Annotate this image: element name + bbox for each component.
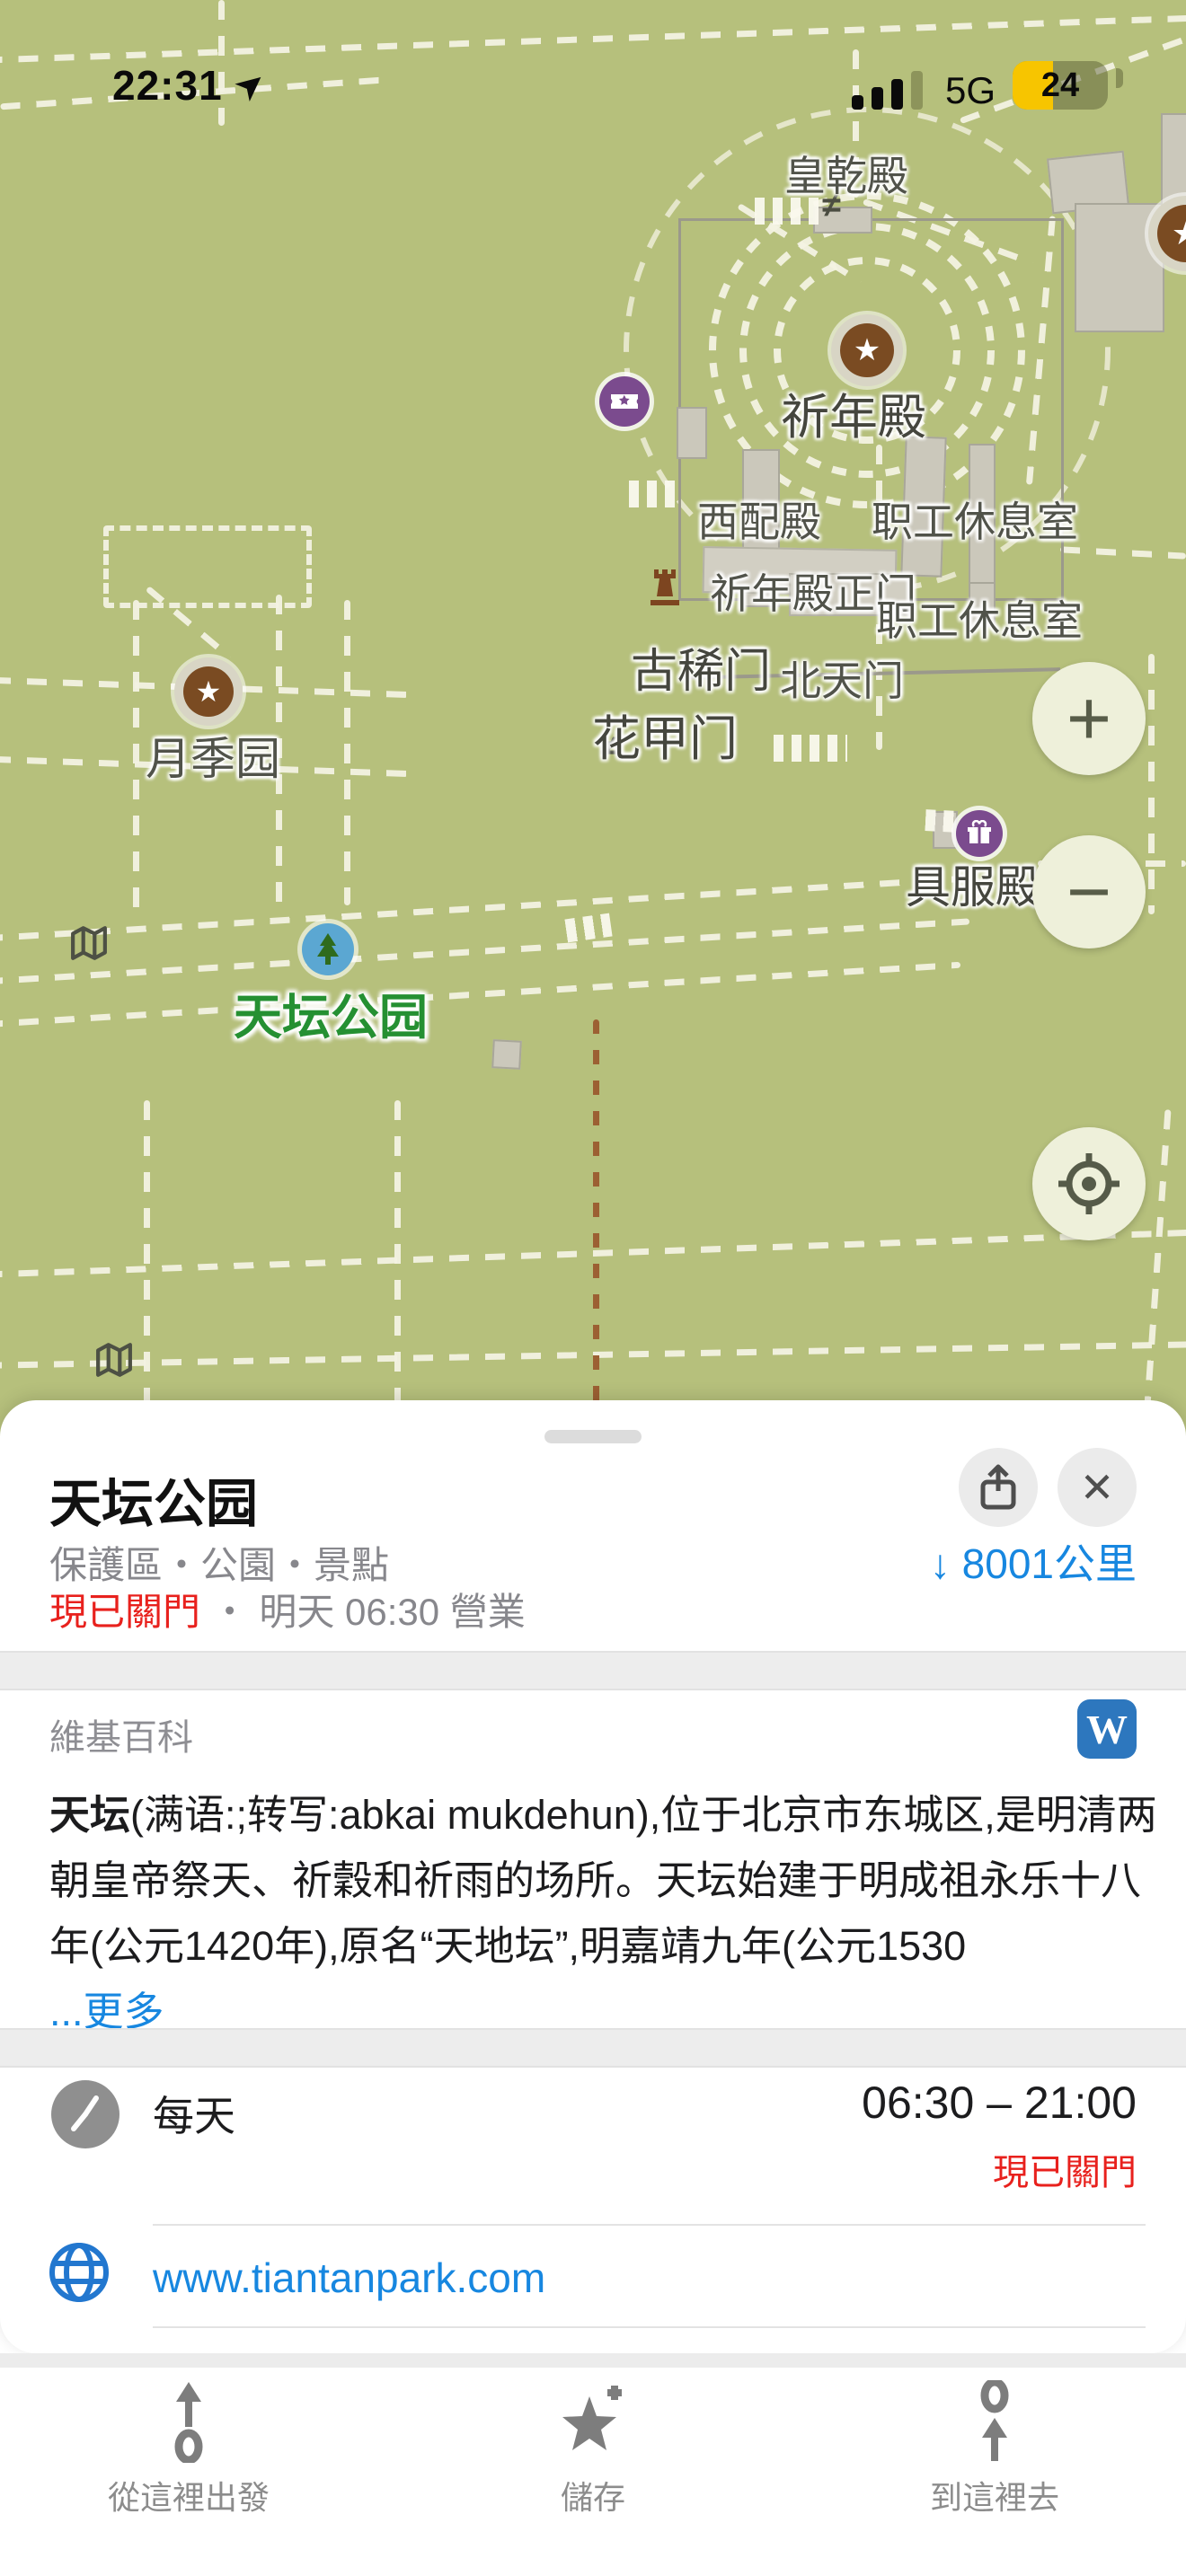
route-from-icon	[162, 2380, 216, 2463]
map-label-huajiamen: 花甲门	[592, 699, 738, 770]
status-bar-right: 5G 24	[852, 61, 1123, 110]
map-canvas[interactable]: ★ ★ ★ ≠ ≠ 皇乾殿 祈年殿	[0, 0, 1186, 1455]
location-arrow-icon: ➤	[226, 60, 275, 111]
building	[1075, 203, 1164, 332]
clock-icon	[49, 2078, 121, 2150]
signal-bar	[891, 79, 903, 110]
map-label-yuejiyuan: 月季园	[146, 723, 280, 788]
globe-icon	[47, 2240, 111, 2305]
route-to-icon	[968, 2380, 1022, 2463]
poi-gift-shop-marker[interactable]	[956, 810, 1003, 857]
toolbar-label: 到這裡去	[930, 2472, 1059, 2519]
toolbar-label: 儲存	[561, 2472, 625, 2519]
building	[677, 407, 707, 459]
map-label-xipeidian: 西配殿	[697, 490, 821, 549]
map-label-beitianmen: 北天门	[780, 648, 904, 708]
signal-bar	[872, 87, 883, 110]
place-title: 天坛公园	[49, 1461, 258, 1537]
battery-percent: 24	[1013, 61, 1108, 110]
gift-icon	[966, 820, 993, 847]
locate-icon	[1055, 1150, 1123, 1218]
map-label-qiniandian: 祈年殿	[781, 377, 926, 448]
locate-button[interactable]	[1032, 1127, 1146, 1240]
share-icon	[978, 1464, 1019, 1511]
distance-badge: ↓ 8001公里	[930, 1531, 1137, 1591]
zoom-out-button[interactable]: −	[1032, 835, 1146, 948]
network-type: 5G	[945, 72, 996, 110]
map-label-tiantan-park: 天坛公园	[234, 977, 428, 1048]
star-plus-icon	[557, 2380, 629, 2463]
path-steps	[925, 809, 958, 833]
section-divider	[0, 2028, 1186, 2068]
signal-bar	[852, 95, 863, 110]
poi-qiniandian-marker[interactable]: ★	[840, 323, 894, 377]
wikipedia-excerpt: 天坛(满语:;转写:abkai mukdehun),位于北京市东城区,是明清两朝…	[49, 1782, 1159, 2044]
battery-icon: 24	[1013, 61, 1108, 110]
close-button[interactable]: ✕	[1058, 1448, 1137, 1527]
map-label-huangqiandian: 皇乾殿	[784, 144, 908, 203]
distance-value: 8001公里	[962, 1540, 1137, 1587]
card-gap	[0, 2353, 1186, 2368]
website-link[interactable]: www.tiantanpark.com	[153, 2254, 545, 2302]
wiki-body: (满语:;转写:abkai mukdehun),位于北京市东城区,是明清两朝皇帝…	[49, 1792, 1157, 1969]
clock-time: 22:31	[112, 61, 223, 110]
map-label-xiuxishi-2: 职工休息室	[876, 588, 1083, 648]
open-status-line: 現已關門 ・ 明天 06:30 營業	[49, 1582, 526, 1636]
building	[1161, 113, 1186, 208]
tree-icon	[313, 931, 343, 967]
map-board-icon	[70, 925, 108, 961]
section-divider	[0, 1651, 1186, 1690]
path-steps	[629, 481, 683, 507]
save-button[interactable]: 儲存	[458, 2380, 728, 2519]
wiki-term: 天坛	[49, 1792, 130, 1838]
wikipedia-w: W	[1086, 1706, 1128, 1753]
star-icon: ★	[196, 675, 222, 709]
wikipedia-heading: 維基百科	[49, 1708, 193, 1760]
action-toolbar: 從這裡出發 儲存 到這裡去	[0, 2368, 1186, 2576]
plus-icon: +	[1067, 680, 1111, 757]
map-label-jufudian: 具服殿	[906, 851, 1040, 916]
wikipedia-icon[interactable]: W	[1077, 1699, 1137, 1759]
status-bar: 22:31 ➤ 5G 24	[0, 54, 1186, 117]
signal-bar-empty	[911, 71, 923, 110]
minus-icon: −	[1067, 853, 1111, 931]
opens-next: 明天 06:30 營業	[259, 1591, 525, 1633]
toolbar-label: 從這裡出發	[108, 2472, 270, 2519]
battery-cap	[1116, 68, 1123, 88]
poi-yuejiyuan-marker[interactable]: ★	[183, 666, 234, 717]
map-label-guximen: 古稀门	[631, 633, 771, 701]
share-button[interactable]	[959, 1448, 1038, 1527]
star-icon: ★	[1172, 215, 1186, 252]
map-board-icon	[95, 1342, 133, 1378]
directions-from-here-button[interactable]: 從這裡出發	[54, 2380, 323, 2519]
zoom-in-button[interactable]: +	[1032, 662, 1146, 775]
poi-ticket-office-marker[interactable]	[599, 376, 650, 427]
row-divider	[153, 2326, 1146, 2328]
hours-days: 每天	[153, 2084, 235, 2143]
place-card: 天坛公园 ✕ 保護區・公園・景點 ↓ 8001公里 現已關門 ・ 明天 06:3…	[0, 1400, 1186, 2353]
status-separator: ・	[200, 1591, 259, 1633]
close-icon: ✕	[1080, 1463, 1115, 1512]
directions-to-here-button[interactable]: 到這裡去	[860, 2380, 1129, 2519]
hours-closed-status: 現已關門	[993, 2143, 1137, 2195]
tower-icon	[647, 564, 683, 609]
building	[491, 1039, 522, 1070]
ticket-icon	[609, 391, 640, 412]
closed-status: 現已關門	[49, 1591, 200, 1633]
hours-range: 06:30 – 21:00	[862, 2077, 1137, 2129]
path-steps	[774, 735, 847, 762]
row-divider	[153, 2224, 1146, 2226]
star-icon: ★	[854, 332, 881, 368]
down-arrow-icon: ↓	[930, 1540, 951, 1587]
park-marker[interactable]	[302, 923, 354, 975]
sheet-drag-handle[interactable]	[544, 1430, 642, 1443]
maps-app-screen: { "status_bar": { "time": "22:31", "netw…	[0, 0, 1186, 2576]
map-label-xiuxishi-1: 职工休息室	[872, 490, 1078, 549]
